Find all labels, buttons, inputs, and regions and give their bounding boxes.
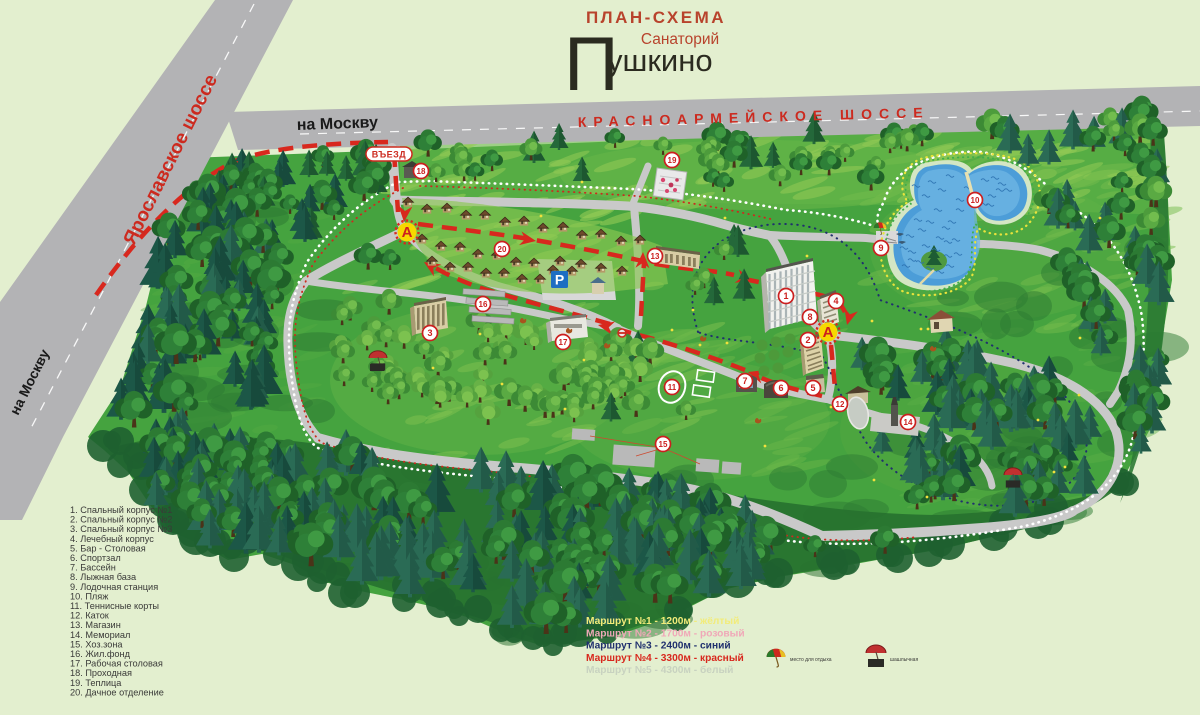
svg-text:13: 13 — [651, 252, 660, 261]
svg-text:9: 9 — [878, 243, 883, 253]
svg-text:P: P — [555, 272, 564, 288]
svg-text:20. Дачное отделение: 20. Дачное отделение — [70, 687, 164, 697]
svg-text:13. Магазин: 13. Магазин — [70, 620, 121, 630]
svg-text:6. Спортзал: 6. Спортзал — [70, 553, 121, 563]
svg-text:10. Пляж: 10. Пляж — [70, 591, 109, 601]
svg-text:ушкино: ушкино — [607, 43, 713, 78]
svg-text:Маршрут №1 - 1200м - жёлтый: Маршрут №1 - 1200м - жёлтый — [586, 616, 739, 627]
svg-text:11. Теннисные корты: 11. Теннисные корты — [70, 601, 159, 611]
svg-text:4. Лечебный корпус: 4. Лечебный корпус — [70, 534, 154, 544]
svg-text:3: 3 — [427, 328, 432, 338]
svg-text:11: 11 — [668, 383, 677, 392]
svg-text:2: 2 — [805, 335, 810, 345]
svg-text:Маршрут №5 - 4300м - белый: Маршрут №5 - 4300м - белый — [586, 664, 733, 676]
svg-text:15: 15 — [659, 440, 668, 449]
svg-text:5. Бар - Столовая: 5. Бар - Столовая — [70, 543, 146, 553]
svg-text:A: A — [402, 224, 413, 241]
svg-text:17. Рабочая столовая: 17. Рабочая столовая — [70, 659, 163, 669]
svg-text:8: 8 — [807, 312, 812, 322]
svg-text:20: 20 — [498, 245, 507, 254]
svg-text:9. Лодочная станция: 9. Лодочная станция — [70, 582, 158, 592]
svg-text:19: 19 — [668, 156, 677, 165]
svg-text:7. Бассейн: 7. Бассейн — [70, 563, 116, 573]
svg-text:1: 1 — [783, 291, 788, 301]
svg-text:18. Проходная: 18. Проходная — [70, 668, 132, 678]
svg-text:7: 7 — [742, 376, 747, 386]
svg-text:12. Каток: 12. Каток — [70, 611, 110, 621]
svg-text:8. Лыжная база: 8. Лыжная база — [70, 572, 137, 582]
svg-text:3. Спальный корпус №3: 3. Спальный корпус №3 — [70, 524, 172, 534]
svg-text:4: 4 — [833, 296, 838, 306]
svg-text:17: 17 — [559, 338, 568, 347]
svg-text:18: 18 — [417, 167, 426, 176]
svg-text:12: 12 — [836, 400, 845, 409]
svg-text:10: 10 — [971, 196, 980, 205]
svg-text:Маршрут №4 - 3300м - красный: Маршрут №4 - 3300м - красный — [586, 653, 744, 664]
svg-text:на Москву: на Москву — [297, 114, 379, 134]
svg-text:A: A — [823, 324, 834, 341]
svg-text:шашлычная: шашлычная — [890, 657, 918, 663]
svg-text:1. Спальный корпус №1: 1. Спальный корпус №1 — [70, 505, 172, 515]
svg-text:14: 14 — [904, 418, 913, 427]
svg-text:15. Хоз.зона: 15. Хоз.зона — [70, 639, 123, 649]
svg-text:место для отдыха: место для отдыха — [790, 657, 832, 663]
svg-text:Маршрут №2 - 1700м - розовый: Маршрут №2 - 1700м - розовый — [586, 628, 745, 639]
svg-text:6: 6 — [778, 383, 783, 393]
svg-text:5: 5 — [810, 383, 815, 393]
svg-text:16. Жил.фонд: 16. Жил.фонд — [70, 649, 131, 659]
svg-text:14. Мемориал: 14. Мемориал — [70, 630, 130, 640]
svg-text:2. Спальный корпус №2: 2. Спальный корпус №2 — [70, 515, 172, 525]
svg-text:16: 16 — [479, 300, 488, 309]
svg-text:ВЪЕЗД: ВЪЕЗД — [372, 150, 407, 160]
svg-text:19. Теплица: 19. Теплица — [70, 678, 122, 688]
svg-text:Маршрут №3 - 2400м - синий: Маршрут №3 - 2400м - синий — [586, 641, 731, 652]
